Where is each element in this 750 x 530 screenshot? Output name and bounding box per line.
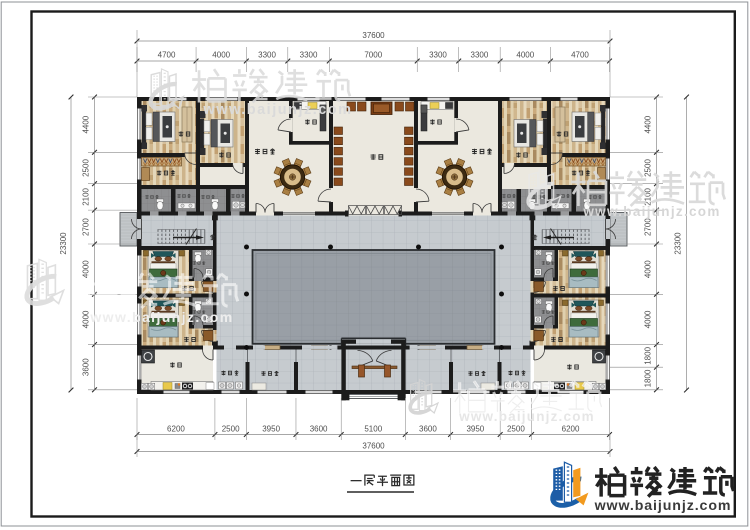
svg-text:3950: 3950 <box>262 425 280 434</box>
svg-text:www.baijunjz.com: www.baijunjz.com <box>89 309 233 325</box>
svg-text:2100: 2100 <box>82 187 91 205</box>
svg-text:4400: 4400 <box>82 115 91 133</box>
svg-text:4000: 4000 <box>516 51 534 60</box>
svg-text:23300: 23300 <box>674 232 683 255</box>
svg-text:www.baijunjz.com: www.baijunjz.com <box>594 498 732 514</box>
svg-text:www.baijunjz.com: www.baijunjz.com <box>582 204 720 219</box>
svg-text:4000: 4000 <box>82 310 91 328</box>
svg-text:4000: 4000 <box>644 310 653 328</box>
svg-text:2700: 2700 <box>82 218 91 236</box>
svg-text:4000: 4000 <box>212 51 230 60</box>
svg-text:1800: 1800 <box>644 369 653 387</box>
svg-text:3600: 3600 <box>419 425 437 434</box>
svg-text:2500: 2500 <box>222 425 240 434</box>
svg-text:7000: 7000 <box>364 51 382 60</box>
svg-text:4700: 4700 <box>158 51 176 60</box>
svg-text:2700: 2700 <box>644 218 653 236</box>
svg-text:37600: 37600 <box>362 31 385 40</box>
svg-text:2500: 2500 <box>507 425 525 434</box>
svg-text:23300: 23300 <box>59 232 68 255</box>
svg-text:1800: 1800 <box>644 346 653 364</box>
svg-text:2500: 2500 <box>82 159 91 177</box>
svg-text:4700: 4700 <box>571 51 589 60</box>
svg-text:4000: 4000 <box>644 260 653 278</box>
svg-text:37600: 37600 <box>362 442 385 451</box>
svg-text:6200: 6200 <box>167 425 185 434</box>
svg-text:3300: 3300 <box>429 51 447 60</box>
svg-text:2500: 2500 <box>644 159 653 177</box>
svg-text:3300: 3300 <box>300 51 318 60</box>
svg-text:3300: 3300 <box>471 51 489 60</box>
svg-text:3600: 3600 <box>310 425 328 434</box>
svg-text:4400: 4400 <box>644 115 653 133</box>
svg-text:www.baijunjz.com: www.baijunjz.com <box>458 409 595 424</box>
svg-text:3950: 3950 <box>466 425 484 434</box>
svg-text:www.baijunjz.com: www.baijunjz.com <box>202 102 352 118</box>
svg-text:5100: 5100 <box>364 425 382 434</box>
svg-text:3600: 3600 <box>82 358 91 376</box>
svg-text:3300: 3300 <box>258 51 276 60</box>
svg-text:6200: 6200 <box>562 425 580 434</box>
